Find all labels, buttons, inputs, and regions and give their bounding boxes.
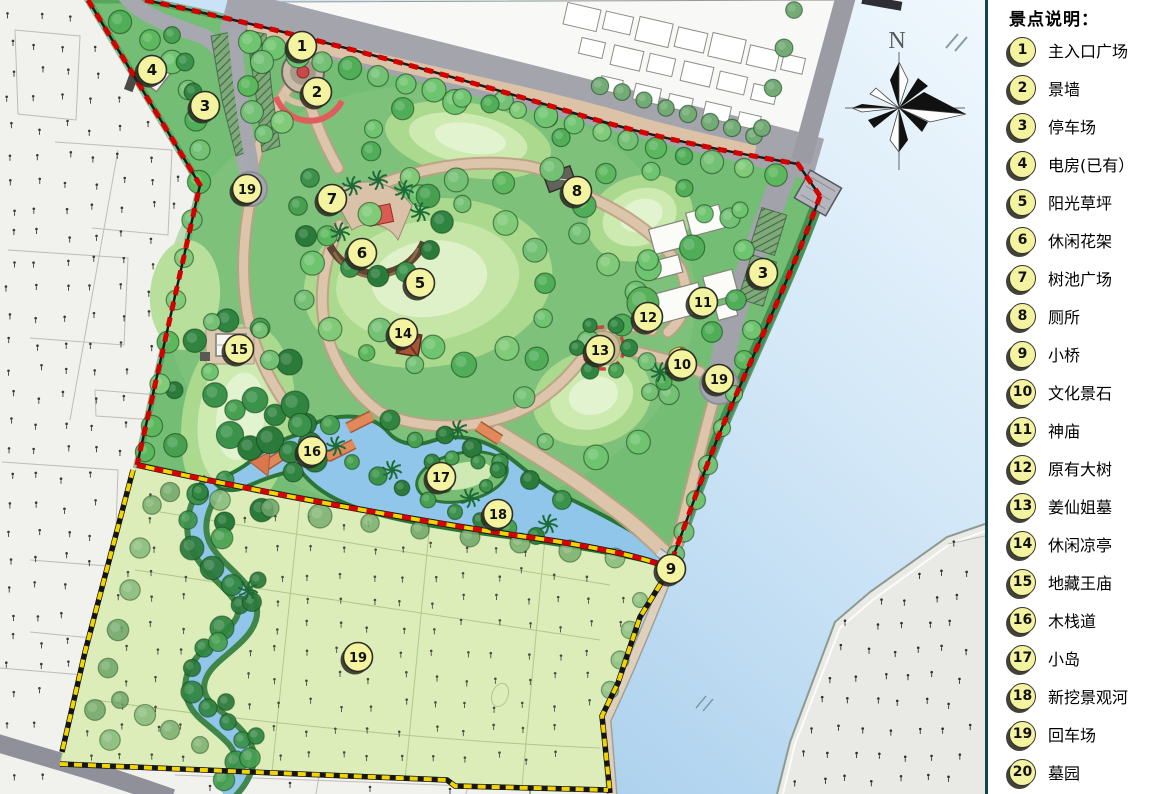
map-canvas: N 1234197658311121314151019161718919	[0, 0, 985, 794]
legend-item: 6休闲花架	[988, 221, 1168, 259]
legend-item: 11神庙	[988, 411, 1168, 449]
legend-item-label: 文化景石	[1048, 380, 1112, 404]
legend-item-label: 厕所	[1048, 304, 1080, 328]
legend-item: 13姜仙姐墓	[988, 487, 1168, 525]
legend-number-badge: 13	[1009, 493, 1036, 520]
legend-number-badge: 7	[1009, 265, 1036, 292]
svg-text:18: 18	[489, 508, 507, 523]
legend-item: 20墓园	[988, 753, 1168, 791]
legend-number-badge: 12	[1009, 455, 1036, 482]
legend-number-badge: 9	[1009, 341, 1036, 368]
legend-number-badge: 10	[1009, 379, 1036, 406]
legend-item: 7树池广场	[988, 259, 1168, 297]
svg-text:9: 9	[666, 560, 676, 578]
legend-item: 15地藏王庙	[988, 563, 1168, 601]
legend-item-label: 神庙	[1048, 418, 1080, 442]
legend-number-badge: 17	[1009, 645, 1036, 672]
svg-text:2: 2	[312, 83, 322, 101]
legend-item-label: 小岛	[1048, 646, 1080, 670]
legend-item-label: 休闲花架	[1048, 228, 1112, 252]
svg-text:3: 3	[758, 264, 768, 282]
legend-item-label: 新挖景观河	[1048, 684, 1128, 708]
legend-number-badge: 3	[1009, 113, 1036, 140]
legend-number-badge: 11	[1009, 417, 1036, 444]
legend-item: 18新挖景观河	[988, 677, 1168, 715]
legend-title: 景点说明：	[1009, 5, 1099, 30]
svg-text:3: 3	[200, 97, 210, 115]
legend-item: 5阳光草坪	[988, 183, 1168, 221]
legend-item-label: 阳光草坪	[1048, 190, 1112, 214]
legend-number-badge: 20	[1009, 759, 1036, 786]
legend-item-label: 电房(已有）	[1048, 152, 1134, 176]
legend-item: 1主入口广场	[988, 31, 1168, 69]
svg-text:6: 6	[357, 244, 367, 262]
legend-item-label: 主入口广场	[1048, 38, 1128, 62]
legend-item-label: 休闲凉亭	[1048, 532, 1112, 556]
legend-list: 1主入口广场2景墙3停车场4电房(已有）5阳光草坪6休闲花架7树池广场8厕所9小…	[988, 31, 1168, 791]
svg-text:4: 4	[147, 61, 157, 79]
svg-text:19: 19	[349, 651, 367, 666]
legend-number-badge: 5	[1009, 189, 1036, 216]
legend-item: 19回车场	[988, 715, 1168, 753]
svg-text:1: 1	[297, 37, 307, 55]
legend-item-label: 木栈道	[1048, 608, 1096, 632]
legend-item-label: 景墙	[1048, 76, 1080, 100]
svg-text:19: 19	[710, 373, 728, 388]
svg-text:15: 15	[230, 343, 248, 358]
legend-item-label: 墓园	[1048, 760, 1080, 784]
svg-text:11: 11	[694, 296, 712, 311]
legend-number-badge: 2	[1009, 75, 1036, 102]
legend-item: 10文化景石	[988, 373, 1168, 411]
legend-item: 17小岛	[988, 639, 1168, 677]
legend-item-label: 回车场	[1048, 722, 1096, 746]
legend-number-badge: 16	[1009, 607, 1036, 634]
map-area: N 1234197658311121314151019161718919	[0, 0, 985, 794]
legend-item-label: 小桥	[1048, 342, 1080, 366]
legend-item: 4电房(已有）	[988, 145, 1168, 183]
svg-text:17: 17	[432, 471, 450, 486]
legend-number-badge: 4	[1009, 151, 1036, 178]
legend-number-badge: 6	[1009, 227, 1036, 254]
svg-text:19: 19	[238, 183, 256, 198]
site-plan: N 1234197658311121314151019161718919 景点说…	[0, 0, 1168, 794]
svg-text:13: 13	[591, 344, 609, 359]
legend-item: 8厕所	[988, 297, 1168, 335]
compass-north-label: N	[888, 28, 905, 54]
legend-item: 2景墙	[988, 69, 1168, 107]
legend-number-badge: 14	[1009, 531, 1036, 558]
svg-text:14: 14	[394, 327, 412, 342]
legend-item: 16木栈道	[988, 601, 1168, 639]
legend-item-label: 地藏王庙	[1048, 570, 1112, 594]
svg-text:16: 16	[303, 445, 321, 460]
legend-panel: 景点说明： 1主入口广场2景墙3停车场4电房(已有）5阳光草坪6休闲花架7树池广…	[985, 0, 1168, 794]
legend-item-label: 树池广场	[1048, 266, 1112, 290]
legend-item: 14休闲凉亭	[988, 525, 1168, 563]
legend-item-label: 原有大树	[1048, 456, 1112, 480]
legend-number-badge: 8	[1009, 303, 1036, 330]
legend-item: 3停车场	[988, 107, 1168, 145]
legend-item-label: 姜仙姐墓	[1048, 494, 1112, 518]
legend-number-badge: 19	[1009, 721, 1036, 748]
legend-number-badge: 15	[1009, 569, 1036, 596]
svg-text:5: 5	[415, 274, 425, 292]
legend-item: 9小桥	[988, 335, 1168, 373]
legend-number-badge: 1	[1009, 37, 1036, 64]
svg-text:12: 12	[639, 311, 657, 326]
legend-item-label: 停车场	[1048, 114, 1096, 138]
legend-item: 12原有大树	[988, 449, 1168, 487]
svg-text:8: 8	[572, 182, 582, 200]
svg-text:10: 10	[673, 358, 691, 373]
legend-number-badge: 18	[1009, 683, 1036, 710]
svg-text:7: 7	[327, 190, 337, 208]
